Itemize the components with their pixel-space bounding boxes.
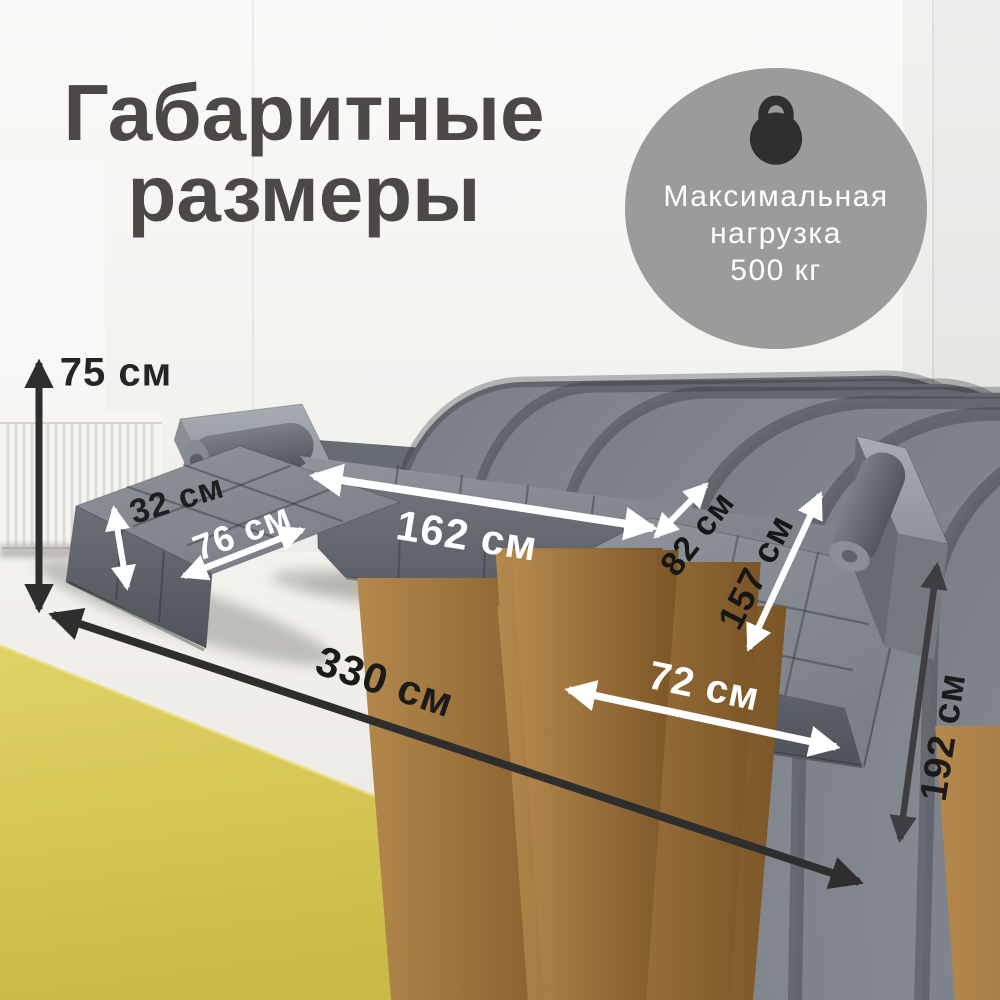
title-line-2: размеры [28, 153, 580, 234]
max-load-text: Максимальная нагрузка 500 кг [663, 178, 888, 289]
max-load-value: 500 кг [663, 252, 888, 289]
title-line-1: Габаритные [28, 72, 580, 153]
max-load-badge: Максимальная нагрузка 500 кг [625, 68, 927, 349]
max-load-line-2: нагрузка [663, 215, 888, 252]
kettlebell-icon [747, 88, 805, 166]
max-load-line-1: Максимальная [663, 178, 888, 215]
dimension-label-75: 75 см [60, 351, 172, 396]
page-title: Габаритные размеры [28, 72, 580, 234]
product-dimensions-infographic: Габаритные размеры Максимальная нагрузка… [0, 0, 1000, 1000]
